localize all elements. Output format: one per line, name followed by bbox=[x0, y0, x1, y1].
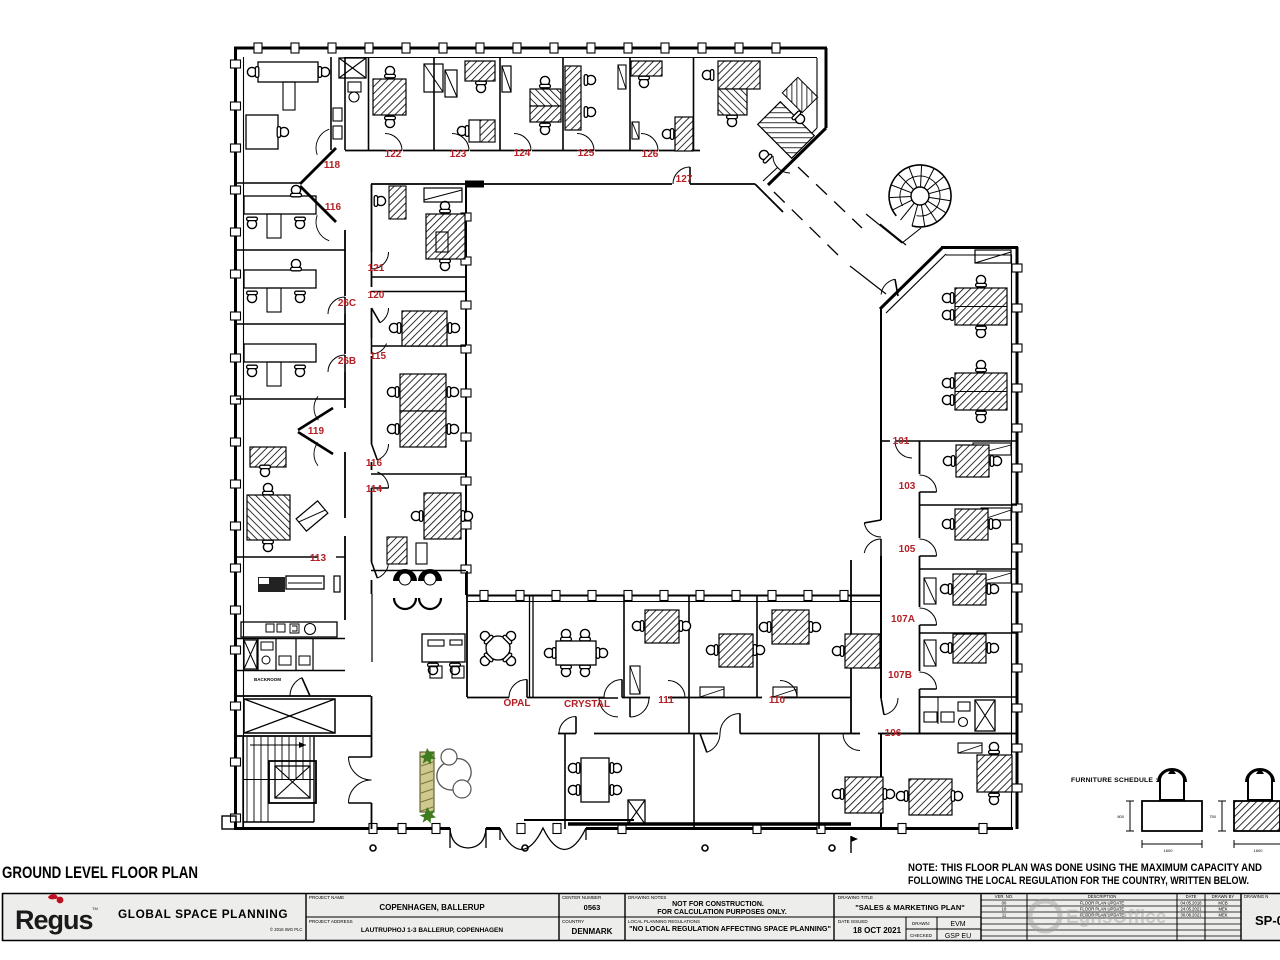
svg-text:0563: 0563 bbox=[584, 903, 601, 912]
svg-text:"SALES & MARKETING PLAN": "SALES & MARKETING PLAN" bbox=[855, 903, 965, 912]
svg-text:GLOBAL SPACE PLANNING: GLOBAL SPACE PLANNING bbox=[118, 907, 288, 921]
svg-text:121: 121 bbox=[368, 263, 385, 274]
svg-text:107B: 107B bbox=[888, 670, 912, 681]
svg-text:DESCRIPTION: DESCRIPTION bbox=[1088, 894, 1117, 899]
svg-text:GSP EU: GSP EU bbox=[945, 933, 971, 940]
svg-text:TM: TM bbox=[92, 906, 98, 911]
svg-text:DATE ISSUED: DATE ISSUED bbox=[838, 919, 868, 924]
svg-text:COUNTRY: COUNTRY bbox=[562, 919, 584, 924]
svg-text:800: 800 bbox=[1117, 814, 1124, 819]
svg-text:NOTE: THIS FLOOR PLAN WAS: NOTE: THIS FLOOR PLAN WAS DONE USING THE… bbox=[908, 862, 1262, 874]
svg-text:125: 125 bbox=[578, 148, 595, 159]
svg-text:EgnsOffice: EgnsOffice bbox=[1066, 907, 1166, 928]
svg-text:126: 126 bbox=[642, 149, 659, 160]
svg-text:MEK: MEK bbox=[1218, 913, 1227, 918]
svg-text:118: 118 bbox=[324, 160, 341, 171]
svg-text:1600: 1600 bbox=[1164, 848, 1174, 853]
svg-text:122: 122 bbox=[385, 149, 402, 160]
svg-text:MEK: MEK bbox=[1218, 907, 1227, 912]
svg-text:120: 120 bbox=[368, 290, 385, 301]
svg-text:MCB: MCB bbox=[1218, 901, 1228, 906]
svg-text:115: 115 bbox=[370, 351, 387, 362]
svg-text:FOR CALCULATION PURPOSES ONLY.: FOR CALCULATION PURPOSES ONLY. bbox=[657, 909, 787, 916]
svg-text:105: 105 bbox=[899, 544, 916, 555]
svg-text:CHECKED: CHECKED bbox=[910, 933, 933, 938]
svg-text:DRAWING NOTES: DRAWING NOTES bbox=[628, 895, 666, 900]
svg-text:110: 110 bbox=[769, 695, 786, 706]
svg-text:SP-0: SP-0 bbox=[1255, 913, 1280, 928]
svg-text:101: 101 bbox=[893, 436, 910, 447]
svg-text:26B: 26B bbox=[338, 356, 356, 367]
svg-text:113: 113 bbox=[310, 553, 327, 564]
svg-text:LAUTRUPHOJ 1-3 BALLERUP, COPEN: LAUTRUPHOJ 1-3 BALLERUP, COPENHAGEN bbox=[361, 927, 503, 934]
svg-text:119: 119 bbox=[308, 426, 325, 437]
svg-text:DRAWN:: DRAWN: bbox=[912, 921, 930, 926]
svg-text:11: 11 bbox=[1002, 913, 1007, 918]
svg-text:103: 103 bbox=[899, 481, 916, 492]
svg-text:© 2016 IWG PLC: © 2016 IWG PLC bbox=[270, 927, 302, 932]
svg-text:DENMARK: DENMARK bbox=[572, 927, 613, 936]
svg-text:750: 750 bbox=[1209, 814, 1216, 819]
svg-text:PROJECT NAME: PROJECT NAME bbox=[309, 895, 344, 900]
svg-text:123: 123 bbox=[450, 149, 467, 160]
svg-text:26C: 26C bbox=[338, 298, 356, 309]
svg-text:"NO LOCAL REGULATION AFFECTING: "NO LOCAL REGULATION AFFECTING SPACE PLA… bbox=[629, 924, 831, 933]
svg-text:1600: 1600 bbox=[1254, 848, 1264, 853]
svg-text:24.05.2021: 24.05.2021 bbox=[1181, 907, 1203, 912]
svg-text:10: 10 bbox=[1002, 907, 1007, 912]
svg-text:CRYSTAL: CRYSTAL bbox=[564, 699, 610, 710]
svg-text:Regus: Regus bbox=[15, 905, 93, 935]
svg-text:FURNITURE SCHEDULE :: FURNITURE SCHEDULE : bbox=[1071, 777, 1158, 784]
svg-text:111: 111 bbox=[658, 695, 674, 706]
svg-text:NOT FOR CONSTRUCTION.: NOT FOR CONSTRUCTION. bbox=[672, 901, 764, 908]
svg-text:BACKROOM: BACKROOM bbox=[254, 677, 281, 682]
svg-text:114: 114 bbox=[366, 484, 383, 495]
svg-text:GROUND LEVEL FLOOR PLAN: GROUND LEVEL FLOOR PLAN bbox=[2, 864, 198, 882]
svg-text:DRAWING TITLE: DRAWING TITLE bbox=[838, 895, 873, 900]
svg-text:FLOOR PLAN UPDATE: FLOOR PLAN UPDATE bbox=[1080, 901, 1125, 906]
svg-text:18 OCT 2021: 18 OCT 2021 bbox=[853, 926, 902, 935]
svg-text:PROJECT ADDRESS: PROJECT ADDRESS bbox=[309, 919, 353, 924]
svg-text:30.08.2021: 30.08.2021 bbox=[1181, 913, 1203, 918]
svg-text:DRAWN BY: DRAWN BY bbox=[1212, 894, 1235, 899]
svg-text:04.05.2018: 04.05.2018 bbox=[1181, 901, 1203, 906]
svg-text:107A: 107A bbox=[891, 614, 915, 625]
svg-text:106: 106 bbox=[885, 728, 902, 739]
svg-text:DATE: DATE bbox=[1186, 894, 1197, 899]
svg-text:EVM: EVM bbox=[950, 921, 965, 928]
svg-text:DRAWING N: DRAWING N bbox=[1244, 894, 1268, 899]
svg-text:00: 00 bbox=[1002, 901, 1007, 906]
svg-text:VER. NO.: VER. NO. bbox=[995, 894, 1013, 899]
svg-text:CENTER NUMBER: CENTER NUMBER bbox=[562, 895, 602, 900]
svg-text:FOLLOWING THE LOCAL REGULATION: FOLLOWING THE LOCAL REGULATION FOR THE C… bbox=[908, 875, 1249, 887]
svg-text:116: 116 bbox=[325, 202, 342, 213]
svg-text:116: 116 bbox=[366, 458, 383, 469]
svg-text:124: 124 bbox=[514, 148, 531, 159]
svg-text:COPENHAGEN, BALLERUP: COPENHAGEN, BALLERUP bbox=[379, 903, 485, 912]
svg-text:OPAL: OPAL bbox=[503, 698, 530, 709]
svg-text:127: 127 bbox=[676, 174, 693, 185]
